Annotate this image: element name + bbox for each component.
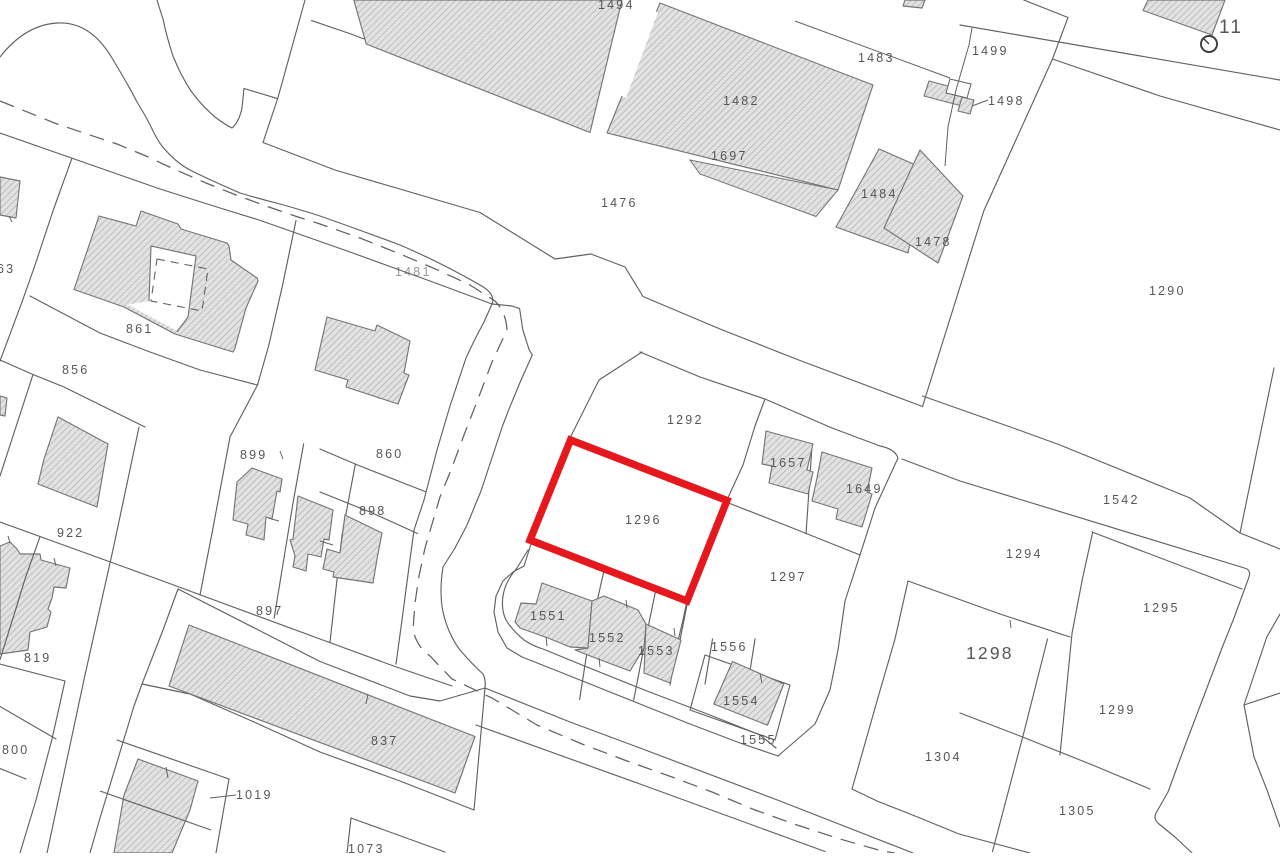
- svg-text:1556: 1556: [711, 640, 748, 654]
- svg-text:1304: 1304: [925, 750, 962, 764]
- svg-text:1551: 1551: [530, 609, 567, 623]
- svg-text:1476: 1476: [601, 196, 638, 210]
- svg-text:1305: 1305: [1059, 804, 1096, 818]
- svg-text:1697: 1697: [711, 149, 748, 163]
- svg-text:1554: 1554: [723, 694, 760, 708]
- svg-text:1295: 1295: [1143, 601, 1180, 615]
- svg-text:860: 860: [376, 447, 403, 461]
- svg-text:1478: 1478: [915, 235, 952, 249]
- svg-text:1482: 1482: [723, 94, 760, 108]
- svg-text:1498: 1498: [988, 94, 1025, 108]
- svg-text:1483: 1483: [858, 51, 895, 65]
- svg-text:1292: 1292: [667, 413, 704, 427]
- svg-text:861: 861: [126, 322, 153, 336]
- svg-text:1019: 1019: [236, 788, 273, 802]
- svg-text:1481: 1481: [395, 265, 432, 279]
- svg-text:837: 837: [371, 734, 398, 748]
- svg-text:1294: 1294: [1006, 547, 1043, 561]
- svg-text:819: 819: [24, 651, 51, 665]
- svg-text:1555: 1555: [740, 733, 777, 747]
- svg-text:1296: 1296: [625, 513, 662, 527]
- svg-text:1552: 1552: [589, 631, 626, 645]
- svg-text:922: 922: [57, 526, 84, 540]
- svg-text:1542: 1542: [1103, 493, 1140, 507]
- svg-text:1297: 1297: [770, 570, 807, 584]
- svg-text:1073: 1073: [348, 842, 385, 853]
- svg-text:1494: 1494: [598, 0, 635, 12]
- svg-text:1657: 1657: [770, 456, 807, 470]
- svg-text:1499: 1499: [972, 44, 1009, 58]
- svg-text:1299: 1299: [1099, 703, 1136, 717]
- svg-text:1298: 1298: [966, 643, 1014, 663]
- svg-text:898: 898: [359, 504, 386, 518]
- svg-text:800: 800: [2, 743, 29, 757]
- svg-text:897: 897: [256, 604, 283, 618]
- svg-text:899: 899: [240, 448, 267, 462]
- svg-text:856: 856: [62, 363, 89, 377]
- svg-text:1290: 1290: [1149, 284, 1186, 298]
- svg-text:1553: 1553: [638, 644, 675, 658]
- svg-text:63: 63: [0, 262, 15, 276]
- svg-text:11: 11: [1219, 17, 1243, 38]
- svg-text:1649: 1649: [846, 482, 883, 496]
- svg-text:1484: 1484: [861, 187, 898, 201]
